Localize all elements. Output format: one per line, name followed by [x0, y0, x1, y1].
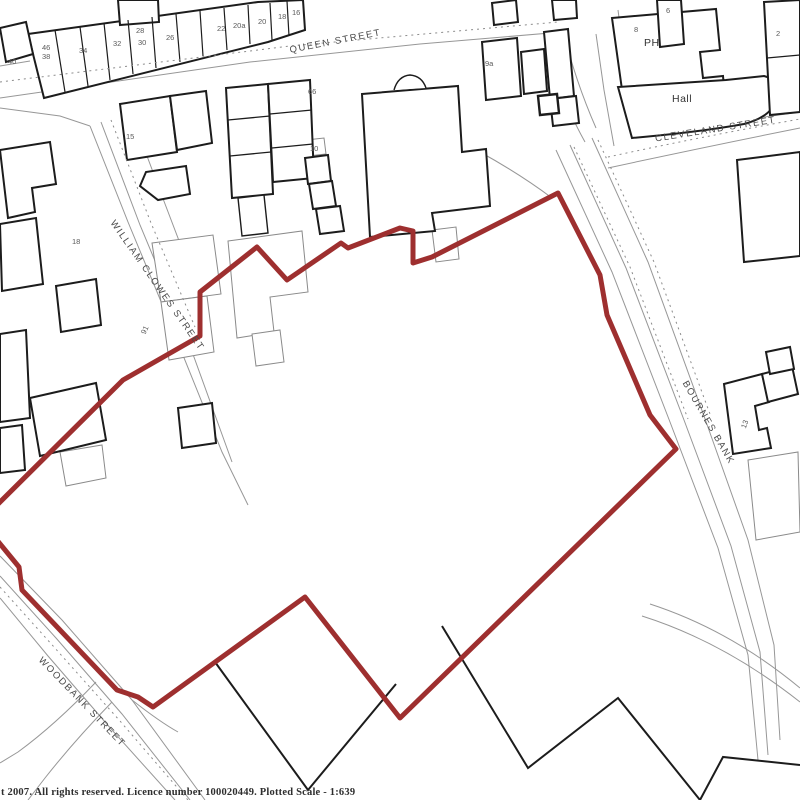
- house-number: 40: [8, 57, 16, 66]
- arrow-building: [140, 166, 190, 200]
- hall-label: Hall: [672, 93, 692, 105]
- street-label-woodbank-street: WOODBANK STREET: [36, 655, 128, 749]
- ph-label: PH: [644, 37, 660, 49]
- house-number: 32: [113, 39, 121, 48]
- house-number: 28: [136, 26, 144, 35]
- house-number: 18: [72, 237, 80, 246]
- map-canvas: QUEEN STREET CLEVELAND STREET WILLIAM CL…: [0, 0, 800, 800]
- house-number: 8: [634, 25, 638, 34]
- house-number: 10: [310, 144, 318, 153]
- house-number: 15: [126, 132, 134, 141]
- house-number: 91: [139, 324, 151, 335]
- house-number: 66: [308, 87, 316, 96]
- large-central-building: [362, 86, 490, 237]
- house-number: 22: [217, 24, 225, 33]
- house-number: 34: [79, 46, 87, 55]
- house-number: 2: [776, 29, 780, 38]
- house-number: 20: [258, 17, 266, 26]
- house-number: 38: [42, 52, 50, 61]
- house-number: 16: [292, 8, 300, 17]
- map-stage: QUEEN STREET CLEVELAND STREET WILLIAM CL…: [0, 0, 800, 800]
- house-number: 20a: [233, 21, 246, 30]
- house-number: 46: [42, 43, 50, 52]
- house-number: 30: [138, 38, 146, 47]
- house-number: 9a: [485, 59, 494, 68]
- copyright-footer: t 2007. All rights reserved. Licence num…: [1, 787, 355, 798]
- house-number: 26: [166, 33, 174, 42]
- house-number: 18: [278, 12, 286, 21]
- house-40-building: [0, 22, 33, 62]
- buildings-layer: [0, 0, 800, 800]
- house-number: 6: [666, 6, 670, 15]
